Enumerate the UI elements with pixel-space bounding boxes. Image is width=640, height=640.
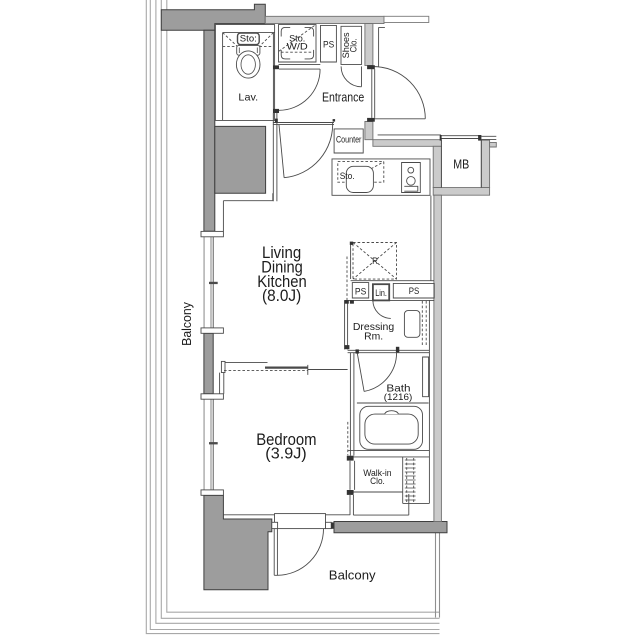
svg-text:Rm.: Rm. (364, 330, 383, 342)
svg-text:Counter: Counter (336, 135, 362, 145)
svg-text:Sto:: Sto: (240, 34, 257, 45)
svg-text:(3.9J): (3.9J) (265, 446, 306, 463)
svg-text:Balcony: Balcony (179, 302, 194, 346)
svg-text:PS: PS (409, 286, 420, 296)
svg-text:Lin.: Lin. (375, 288, 387, 299)
svg-text:W/D: W/D (287, 42, 308, 53)
svg-text:Balcony: Balcony (329, 567, 376, 582)
svg-text:Sto.: Sto. (340, 171, 355, 182)
svg-text:PS: PS (323, 40, 334, 50)
svg-text:(1216): (1216) (384, 392, 413, 403)
svg-text:Lav.: Lav. (238, 92, 258, 104)
svg-text:Clo.: Clo. (348, 38, 359, 52)
svg-text:PS: PS (355, 287, 366, 298)
svg-text:R: R (372, 256, 378, 266)
svg-text:Entrance: Entrance (322, 91, 364, 105)
svg-text:(8.0J): (8.0J) (262, 287, 301, 305)
svg-text:MB: MB (453, 158, 469, 172)
svg-text:Clo.: Clo. (370, 476, 385, 487)
